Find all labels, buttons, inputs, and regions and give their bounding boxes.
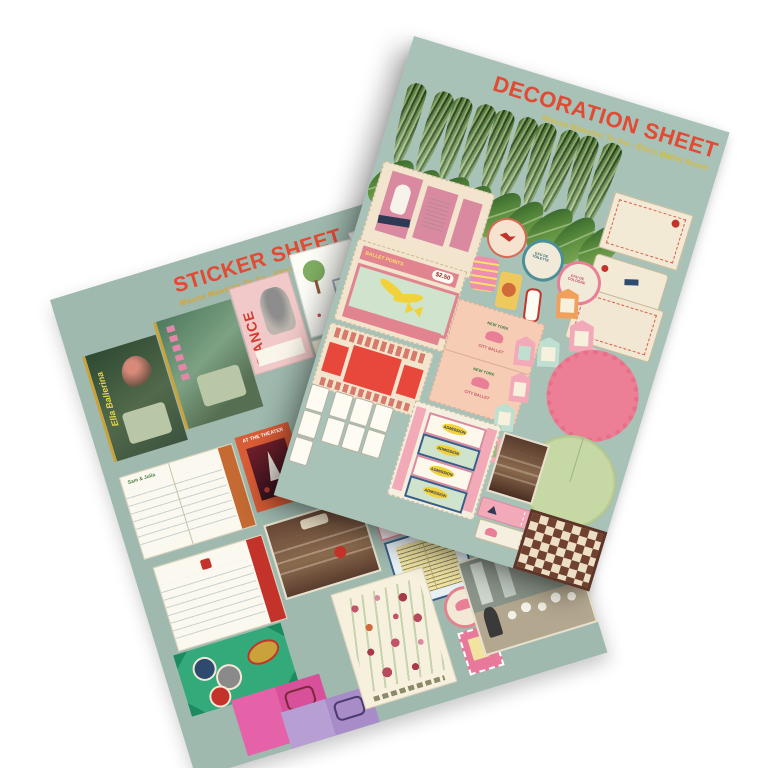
crayon-trunk — [314, 280, 321, 294]
dancer-glyph — [487, 504, 499, 515]
nyc-logo-bottom-text: CITY BALLET — [469, 341, 512, 358]
ribbon-bow — [404, 302, 423, 318]
decoration-sheet: DECORATION SHEET Mouse Mansion To Go - E… — [274, 36, 730, 592]
ballet-points-label: BALLET POINTS — [364, 250, 404, 267]
product-mockup: STICKER SHEET Mouse Mansion To Go - Ella… — [0, 0, 768, 768]
playing-card-pip — [288, 436, 314, 466]
tag-label-area — [574, 331, 589, 347]
admission-oval: ADMISSION — [435, 443, 462, 459]
mouse-figures-accent — [624, 279, 638, 285]
playing-card-pip — [361, 429, 387, 459]
tag-label-area — [560, 298, 575, 313]
ballet-master-figure — [481, 605, 503, 638]
blank-label-sticker — [196, 364, 247, 407]
tutu-glyph — [471, 375, 491, 390]
ballerina-book-title: Ella Ballerina — [91, 358, 121, 428]
red-flap — [396, 365, 424, 400]
playing-card-pip — [296, 409, 322, 439]
ballerina-photo — [118, 352, 157, 393]
eau-de-toilette-text: EAU DE TOILETTE — [529, 250, 554, 264]
lion-tag-label — [494, 271, 522, 311]
dancer-photo — [256, 284, 298, 337]
flower-accent — [601, 264, 610, 273]
rug-slit-line — [569, 438, 583, 482]
admission-oval: ADMISSION — [422, 485, 449, 501]
tag-label-area — [541, 347, 556, 362]
tag-label-area — [518, 345, 532, 360]
pointe-shoe — [393, 293, 423, 303]
shop-shelves — [271, 516, 375, 582]
tag-label-area — [498, 411, 511, 425]
lion-glyph — [501, 282, 517, 298]
forest-book-title-script — [166, 325, 190, 381]
ballerina-doll — [389, 183, 413, 216]
tutu-glyph — [484, 527, 498, 538]
playing-card-face — [369, 403, 395, 433]
painting-window — [470, 561, 494, 605]
nyc-logo-bottom-text: CITY BALLET — [455, 387, 498, 404]
box-text-block — [420, 195, 451, 234]
notebook-lines — [159, 558, 266, 641]
flower-illustrations — [340, 577, 446, 693]
tutu-glyph — [485, 329, 505, 344]
red-capsule-label — [522, 288, 542, 324]
ballet-points-price: $2.50 — [431, 269, 455, 285]
red-bird-glyph — [498, 231, 516, 243]
admission-oval: ADMISSION — [428, 464, 455, 480]
eau-de-cologne-text: EAU DE COLOGNE — [564, 272, 590, 287]
admission-oval: ADMISSION — [441, 421, 468, 437]
navy-ribbon — [378, 215, 411, 228]
playing-card-face — [304, 383, 330, 413]
blank-label-sticker — [121, 401, 172, 444]
pink-rounded-label — [469, 255, 500, 293]
photo-shelves — [493, 448, 544, 490]
red-crest — [200, 558, 212, 570]
tag-label-area — [513, 382, 527, 397]
